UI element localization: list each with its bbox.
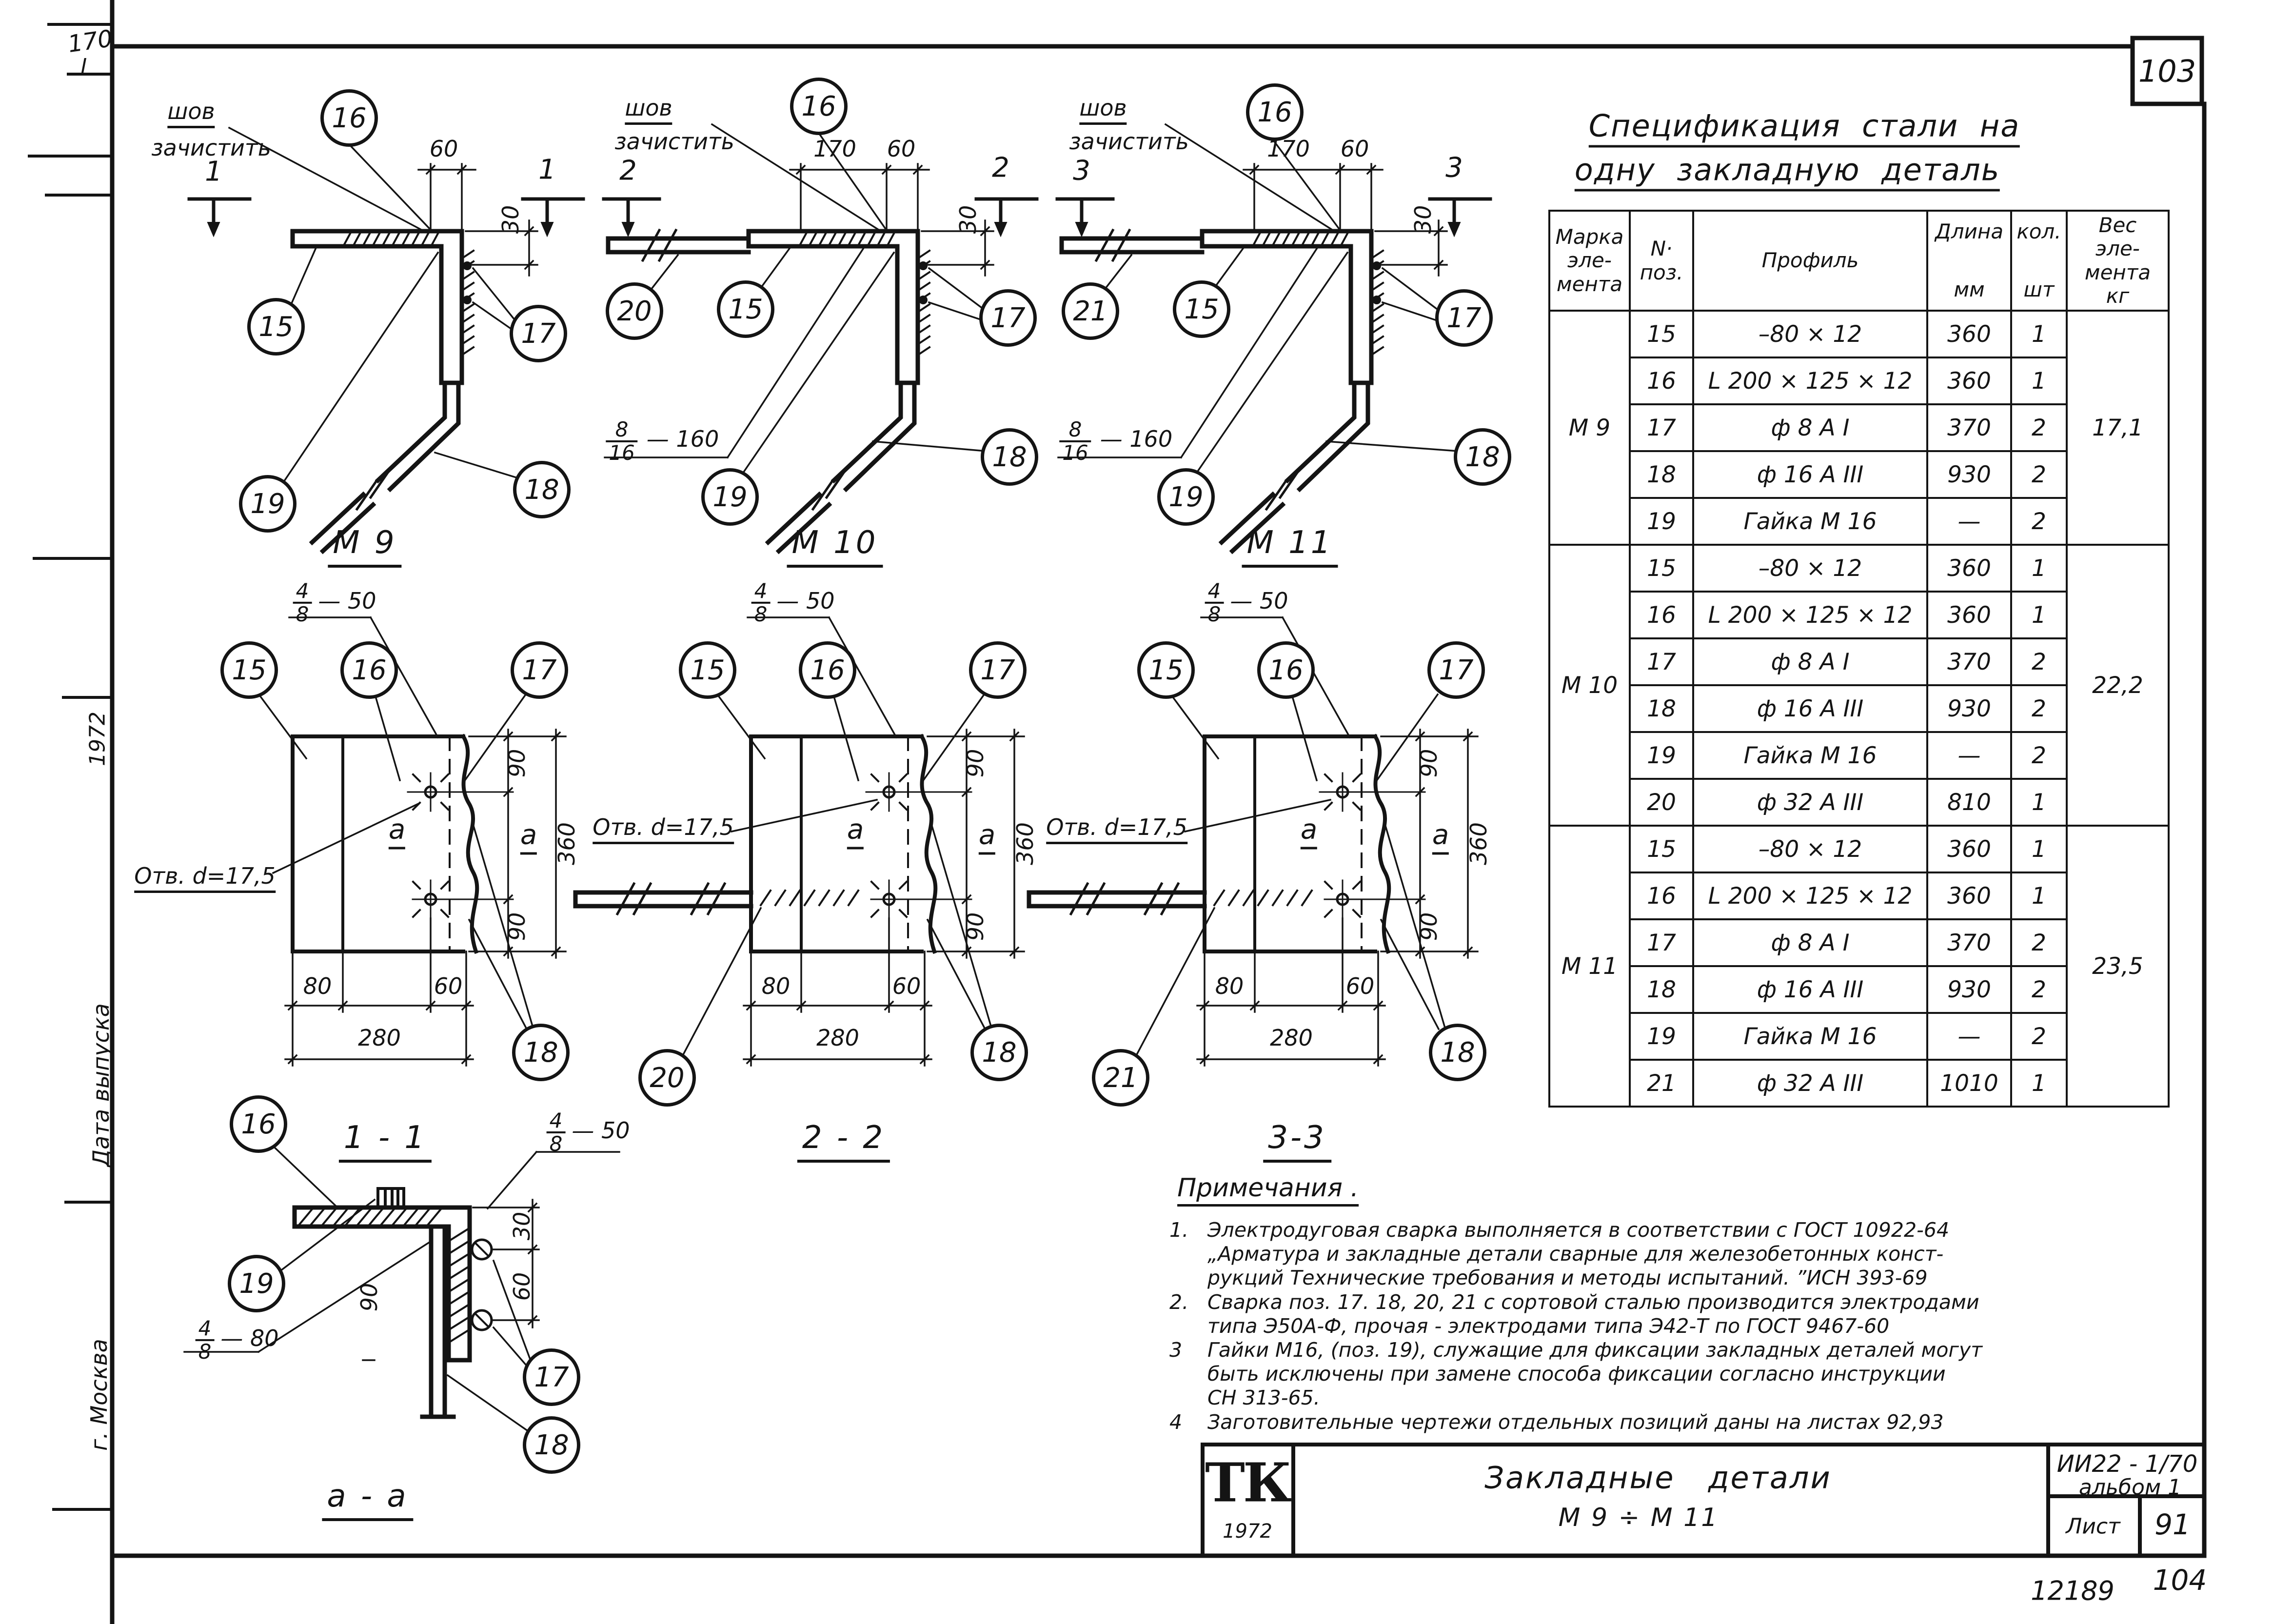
length-cell: 370 — [1927, 919, 2011, 966]
length-cell: — — [1927, 732, 2011, 779]
profile-cell: L 200 × 125 × 12 — [1693, 357, 1927, 404]
qty-cell: 2 — [2011, 498, 2067, 545]
cut-marker-3: 3 — [1073, 155, 1090, 187]
callout-18: 18 — [512, 1024, 570, 1081]
margin-issue-date: Дата выпуска — [88, 1003, 114, 1167]
qty-cell: 1 — [2011, 545, 2067, 592]
col-header-weight: Вес эле- мента кг — [2067, 211, 2169, 311]
document-number: ИИ22 - 1/70 — [2057, 1450, 2198, 1478]
pos-cell: 17 — [1630, 404, 1693, 451]
col-header-length-label: Длина — [1928, 220, 2010, 243]
weld-length-50: — 50 — [776, 588, 834, 614]
table-row: М 9 15 –80 × 12 360 1 17,1 — [1549, 311, 2169, 357]
axis-mark-a: а — [1432, 819, 1449, 855]
profile-cell: ф 32 А III — [1693, 779, 1927, 826]
col-header-qty: кол.шт — [2011, 211, 2067, 311]
dim-80: 80 — [303, 973, 332, 999]
weld-clean-note: зачистить — [614, 128, 734, 155]
note-item: 3 Гайки М16, (поз. 19), служащие для фик… — [1169, 1338, 2223, 1410]
weld-spec-8-16: 816 — [1059, 419, 1091, 464]
callout-16: 16 — [340, 641, 398, 699]
length-cell: 360 — [1927, 592, 2011, 638]
length-cell: 360 — [1927, 545, 2011, 592]
callout-17: 17 — [979, 289, 1037, 347]
qty-cell: 2 — [2011, 638, 2067, 685]
dim-90: 90 — [962, 749, 988, 778]
pos-cell: 17 — [1630, 638, 1693, 685]
callout-17: 17 — [511, 641, 568, 699]
weld-spec-8-16: 816 — [606, 419, 637, 464]
note-number: 1. — [1169, 1218, 1207, 1290]
qty-cell: 1 — [2011, 872, 2067, 919]
col-header-length-unit: мм — [1928, 278, 2010, 301]
length-cell: 360 — [1927, 872, 2011, 919]
dim-90: 90 — [962, 912, 988, 941]
weld-length-50: — 50 — [318, 588, 376, 614]
length-cell: 1010 — [1927, 1060, 2011, 1107]
pos-cell: 15 — [1630, 311, 1693, 357]
weld-spec-4-8: 48 — [293, 580, 312, 625]
mark-cell-m9: М 9 — [1549, 311, 1630, 545]
qty-cell: 2 — [2011, 919, 2067, 966]
pos-cell: 19 — [1630, 1013, 1693, 1060]
dim-80: 80 — [762, 973, 791, 999]
callout-18: 18 — [1454, 428, 1511, 486]
margin-city: г. Москва — [86, 1339, 112, 1451]
profile-cell: ф 32 А III — [1693, 1060, 1927, 1107]
length-cell: 370 — [1927, 638, 2011, 685]
callout-15: 15 — [679, 641, 736, 699]
dim-80: 80 — [1215, 973, 1244, 999]
dim-60: 60 — [509, 1272, 535, 1301]
dim-360: 360 — [1012, 822, 1038, 865]
dim-280: 280 — [1270, 1025, 1313, 1051]
note-text: Сварка поз. 17. 18, 20, 21 с сортовой ст… — [1207, 1290, 1979, 1338]
dim-90: 90 — [1416, 749, 1442, 778]
weld-clean-note: шов — [167, 98, 215, 128]
note-item: 4 Заготовительные чертежи отдельных пози… — [1169, 1410, 2223, 1434]
table-row: М 10 15 –80 × 12 360 1 22,2 — [1549, 545, 2169, 592]
profile-cell: –80 × 12 — [1693, 311, 1927, 357]
qty-cell: 2 — [2011, 1013, 2067, 1060]
pos-cell: 16 — [1630, 592, 1693, 638]
callout-17: 17 — [1427, 641, 1485, 699]
pos-cell: 18 — [1630, 685, 1693, 732]
pos-cell: 19 — [1630, 732, 1693, 779]
qty-cell: 1 — [2011, 592, 2067, 638]
weight-cell-m9: 17,1 — [2067, 311, 2169, 545]
dim-30: 30 — [509, 1212, 535, 1241]
margin-note-2: I — [81, 54, 87, 78]
length-cell: 360 — [1927, 311, 2011, 357]
weld-length-160: — 160 — [647, 426, 719, 452]
weld-length-80: — 80 — [220, 1325, 278, 1351]
profile-cell: –80 × 12 — [1693, 826, 1927, 872]
weld-spec-4-8: 48 — [1205, 580, 1224, 625]
profile-cell: ф 8 А I — [1693, 919, 1927, 966]
dim-60: 60 — [430, 136, 458, 162]
profile-cell: ф 16 А III — [1693, 451, 1927, 498]
weld-spec-4-8: 48 — [547, 1110, 566, 1155]
weld-clean-note: шов — [1079, 95, 1127, 125]
profile-cell: L 200 × 125 × 12 — [1693, 592, 1927, 638]
cut-marker-2: 2 — [619, 155, 637, 187]
callout-18: 18 — [1429, 1024, 1486, 1081]
qty-cell: 2 — [2011, 732, 2067, 779]
cut-marker-1: 1 — [538, 154, 556, 186]
view-title-m11: М 11 — [1242, 525, 1338, 568]
drawing-sheet: 16 15 17 19 18 16 15 17 19 18 20 16 15 1… — [0, 0, 2293, 1624]
callout-21: 21 — [1062, 282, 1119, 340]
weight-cell-m11: 23,5 — [2067, 826, 2169, 1107]
profile-cell: L 200 × 125 × 12 — [1693, 872, 1927, 919]
spec-table-title-line1: Спецификация стали на — [1589, 108, 2020, 148]
steel-spec-table: Марка эле- мента N· поз. Профиль Длинамм… — [1548, 210, 2170, 1108]
dim-360: 360 — [553, 822, 580, 865]
profile-cell: Гайка М 16 — [1693, 1013, 1927, 1060]
spec-table-title-line2: одну закладную деталь — [1575, 152, 2000, 192]
callout-18: 18 — [981, 428, 1038, 486]
mark-cell-m11: М 11 — [1549, 826, 1630, 1107]
profile-cell: ф 8 А I — [1693, 638, 1927, 685]
profile-cell: Гайка М 16 — [1693, 732, 1927, 779]
callout-18: 18 — [513, 461, 571, 518]
note-item: 2. Сварка поз. 17. 18, 20, 21 с сортовой… — [1169, 1290, 2223, 1338]
qty-cell: 2 — [2011, 404, 2067, 451]
profile-cell: ф 16 А III — [1693, 966, 1927, 1013]
qty-cell: 1 — [2011, 826, 2067, 872]
length-cell: 370 — [1927, 404, 2011, 451]
length-cell: 810 — [1927, 779, 2011, 826]
hole-diameter-label: Отв. d=17,5 — [593, 814, 734, 844]
dim-60: 60 — [887, 136, 916, 162]
qty-cell: 2 — [2011, 685, 2067, 732]
axis-mark-a: а — [389, 814, 405, 850]
col-header-qty-label: кол. — [2012, 220, 2066, 243]
dim-170: 170 — [1267, 136, 1310, 162]
stamp-number-left: 12189 — [2031, 1576, 2115, 1606]
length-cell: — — [1927, 498, 2011, 545]
callout-19: 19 — [1157, 468, 1215, 526]
note-text: Электродуговая сварка выполняется в соот… — [1207, 1218, 1949, 1290]
album-number: альбом 1 — [2079, 1475, 2181, 1500]
callout-21: 21 — [1092, 1049, 1149, 1107]
section-title-3-3: 3-3 — [1263, 1120, 1331, 1163]
callout-15: 15 — [220, 641, 278, 699]
dim-90: 90 — [504, 749, 530, 778]
pos-cell: 18 — [1630, 966, 1693, 1013]
col-header-mark: Марка эле- мента — [1549, 211, 1630, 311]
section-title-2-2: 2 - 2 — [797, 1120, 890, 1163]
profile-cell: –80 × 12 — [1693, 545, 1927, 592]
note-item: 1. Электродуговая сварка выполняется в с… — [1169, 1218, 2223, 1290]
qty-cell: 1 — [2011, 1060, 2067, 1107]
weld-spec-4-8: 48 — [751, 580, 771, 625]
note-number: 2. — [1169, 1290, 1207, 1338]
sheet-number: 91 — [2155, 1508, 2191, 1541]
dim-170: 170 — [813, 136, 856, 162]
length-cell: 930 — [1927, 451, 2011, 498]
note-text: Гайки М16, (поз. 19), служащие для фикса… — [1207, 1338, 1982, 1410]
callout-18: 18 — [970, 1024, 1028, 1081]
profile-cell: ф 8 А I — [1693, 404, 1927, 451]
callout-19: 19 — [228, 1255, 285, 1312]
callout-16: 16 — [320, 89, 378, 147]
dim-90: 90 — [1416, 912, 1442, 941]
dim-360: 360 — [1465, 822, 1492, 865]
cut-marker-1: 1 — [205, 156, 222, 188]
view-title-m10: М 10 — [787, 525, 883, 568]
note-number: 4 — [1169, 1410, 1207, 1434]
table-row: М 11 15 –80 × 12 360 1 23,5 — [1549, 826, 2169, 872]
hole-diameter-label: Отв. d=17,5 — [1046, 814, 1187, 844]
profile-cell: ф 16 А III — [1693, 685, 1927, 732]
notes-list: 1. Электродуговая сварка выполняется в с… — [1169, 1218, 2223, 1434]
weld-length-160: — 160 — [1100, 426, 1172, 452]
dim-60: 60 — [434, 973, 463, 999]
callout-19: 19 — [239, 475, 297, 533]
section-title-1-1: 1 - 1 — [339, 1120, 432, 1163]
dim-30: 30 — [1410, 205, 1436, 234]
pos-cell: 15 — [1630, 545, 1693, 592]
pos-cell: 18 — [1630, 451, 1693, 498]
weld-clean-note: шов — [625, 95, 672, 125]
weight-cell-m10: 22,2 — [2067, 545, 2169, 826]
mark-cell-m10: М 10 — [1549, 545, 1630, 826]
pos-cell: 16 — [1630, 872, 1693, 919]
dim-30: 30 — [497, 205, 524, 234]
organization-logo: ТК — [1205, 1451, 1290, 1514]
dim-280: 280 — [358, 1025, 401, 1051]
dim-60: 60 — [1341, 136, 1369, 162]
pos-cell: 19 — [1630, 498, 1693, 545]
callout-18: 18 — [523, 1416, 580, 1474]
axis-mark-a: а — [979, 819, 995, 855]
qty-cell: 2 — [2011, 966, 2067, 1013]
pos-cell: 15 — [1630, 826, 1693, 872]
col-header-profile: Профиль — [1693, 211, 1927, 311]
note-text: Заготовительные чертежи отдельных позици… — [1207, 1410, 1944, 1434]
length-cell: 360 — [1927, 357, 2011, 404]
cut-marker-3: 3 — [1445, 152, 1463, 184]
callout-15: 15 — [1173, 280, 1230, 338]
weld-length-50: — 50 — [572, 1117, 630, 1144]
weld-clean-note: зачистить — [1069, 128, 1189, 155]
dim-60: 60 — [1346, 973, 1375, 999]
callout-20: 20 — [606, 282, 663, 340]
callout-16: 16 — [799, 641, 856, 699]
callout-15: 15 — [1137, 641, 1195, 699]
callout-16: 16 — [1257, 641, 1315, 699]
pos-cell: 16 — [1630, 357, 1693, 404]
callout-16: 16 — [1246, 83, 1304, 141]
callout-17: 17 — [523, 1348, 580, 1406]
weld-length-50: — 50 — [1230, 588, 1288, 614]
dim-90: 90 — [504, 912, 530, 941]
logo-year: 1972 — [1223, 1520, 1272, 1543]
stamp-number-right: 104 — [2153, 1564, 2207, 1597]
note-number: 3 — [1169, 1338, 1207, 1410]
callout-15: 15 — [717, 280, 774, 338]
page-number: 103 — [2138, 54, 2196, 89]
dim-60: 60 — [892, 973, 921, 999]
qty-cell: 1 — [2011, 311, 2067, 357]
sheet-title-line2: М 9 ÷ М 11 — [1559, 1503, 1719, 1532]
hole-diameter-label: Отв. d=17,5 — [134, 863, 276, 893]
pos-cell: 17 — [1630, 919, 1693, 966]
length-cell: 930 — [1927, 966, 2011, 1013]
qty-cell: 2 — [2011, 451, 2067, 498]
col-header-qty-unit: шт — [2012, 278, 2066, 301]
axis-mark-a: а — [1301, 814, 1317, 850]
weld-spec-4-8: 48 — [196, 1318, 215, 1363]
qty-cell: 1 — [2011, 779, 2067, 826]
margin-year: 1972 — [85, 712, 110, 766]
section-title-a-a: а - а — [322, 1478, 413, 1521]
dim-90: 90 — [356, 1283, 382, 1312]
dim-280: 280 — [816, 1025, 859, 1051]
profile-cell: Гайка М 16 — [1693, 498, 1927, 545]
axis-mark-a: а — [847, 814, 864, 850]
view-title-m9: М 9 — [328, 525, 401, 568]
dim-30: 30 — [955, 205, 981, 234]
callout-16: 16 — [790, 78, 848, 135]
callout-17: 17 — [510, 305, 567, 362]
axis-mark-a: а — [520, 819, 537, 855]
qty-cell: 1 — [2011, 357, 2067, 404]
sheet-label: Лист — [2066, 1514, 2120, 1539]
callout-16: 16 — [230, 1095, 287, 1153]
pos-cell: 20 — [1630, 779, 1693, 826]
callout-15: 15 — [247, 298, 305, 356]
sheet-title-line1: Закладные детали — [1484, 1460, 1831, 1496]
col-header-length: Длинамм — [1927, 211, 2011, 311]
cut-marker-2: 2 — [992, 152, 1009, 184]
callout-19: 19 — [701, 468, 759, 526]
pos-cell: 21 — [1630, 1060, 1693, 1107]
callout-20: 20 — [638, 1049, 696, 1107]
callout-17: 17 — [1435, 289, 1493, 347]
length-cell: — — [1927, 1013, 2011, 1060]
notes-heading: Примечания . — [1177, 1173, 1359, 1207]
length-cell: 360 — [1927, 826, 2011, 872]
col-header-pos: N· поз. — [1630, 211, 1693, 311]
callout-17: 17 — [969, 641, 1027, 699]
length-cell: 930 — [1927, 685, 2011, 732]
